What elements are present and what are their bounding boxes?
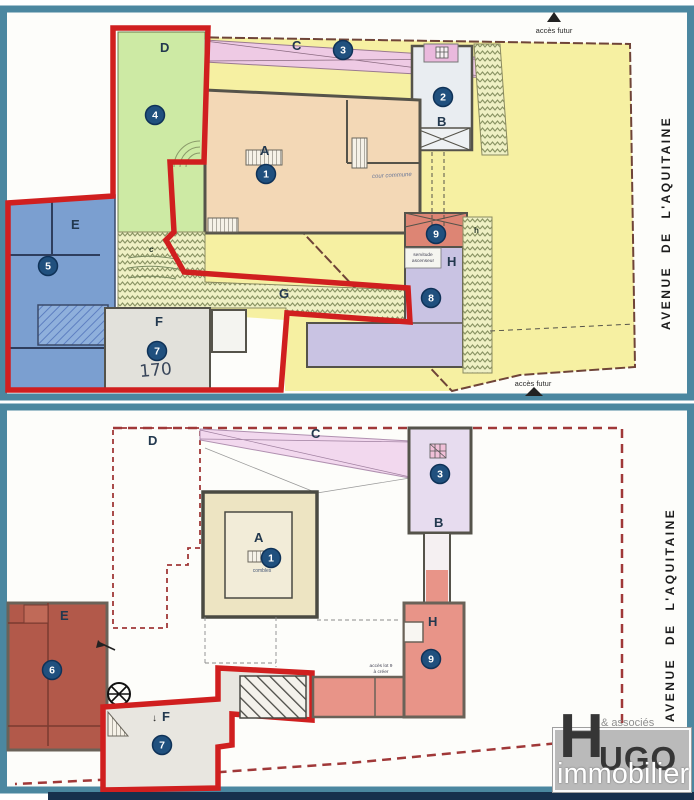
svg-text:4: 4 bbox=[152, 110, 158, 122]
acces-lot9-line2: à créer bbox=[374, 669, 389, 675]
top-letter-a: A bbox=[260, 143, 270, 158]
lot-circle-5: 5 bbox=[39, 257, 58, 276]
top-zone-e-building bbox=[8, 195, 115, 390]
zone-e-servitude-hatch bbox=[38, 305, 108, 345]
top-letter-c: C bbox=[292, 38, 302, 53]
acces-futur-top-label: accès futur bbox=[536, 26, 573, 35]
stairs-icon bbox=[352, 138, 367, 168]
top-plan: D C B A E c G h F H 4 3 2 1 5 9 8 7 cour… bbox=[4, 9, 691, 397]
lot-circle-3: 3 bbox=[431, 465, 450, 484]
bottom-letter-h: H bbox=[428, 614, 437, 629]
lot-circle-2: 2 bbox=[434, 88, 453, 107]
top-letter-g: G bbox=[279, 286, 289, 301]
handwritten-170: 170 bbox=[139, 359, 173, 382]
top-letter-f: F bbox=[155, 314, 163, 329]
servitude-label-line1: servitude bbox=[413, 252, 433, 258]
lot-circle-6: 6 bbox=[43, 661, 62, 680]
svg-text:3: 3 bbox=[340, 45, 346, 57]
lot-circle-1: 1 bbox=[257, 165, 276, 184]
top-f-side-room bbox=[212, 310, 246, 352]
svg-text:9: 9 bbox=[428, 654, 434, 666]
stairs-icon bbox=[208, 218, 238, 232]
bottom-letter-e: E bbox=[60, 608, 69, 623]
lot-circle-4: 4 bbox=[146, 106, 165, 125]
bottom-letter-c: C bbox=[311, 426, 321, 441]
lot-circle-9: 9 bbox=[422, 650, 441, 669]
svg-text:7: 7 bbox=[159, 740, 165, 752]
site-plan-scan: D C B A E c G h F H 4 3 2 1 5 9 8 7 cour… bbox=[0, 0, 694, 800]
svg-text:6: 6 bbox=[49, 665, 55, 677]
zone-e-top-room bbox=[24, 605, 48, 623]
top-letter-h-small: h bbox=[474, 226, 479, 235]
grid-icon bbox=[436, 47, 448, 58]
top-letter-d: D bbox=[160, 40, 169, 55]
bottom-letter-f: F bbox=[162, 709, 170, 724]
lot-circle-7: 7 bbox=[153, 736, 172, 755]
bottom-scan-edge-bar bbox=[48, 792, 694, 800]
lot-circle-7: 7 bbox=[148, 342, 167, 361]
acces-futur-bottom-label: accès futur bbox=[515, 379, 552, 388]
servitude-label-box bbox=[405, 248, 441, 268]
bottom-letter-a: A bbox=[254, 530, 264, 545]
svg-text:7: 7 bbox=[154, 346, 160, 358]
top-letter-h: H bbox=[447, 254, 456, 269]
bottom-letter-b: B bbox=[434, 515, 443, 530]
acces-lot9-line1: accès lot 9 bbox=[370, 663, 393, 669]
top-street-label: AVENUE DE L'AQUITAINE bbox=[659, 116, 673, 330]
grid-icon bbox=[430, 444, 446, 458]
servitude-label-line2: ascenseur bbox=[412, 258, 435, 264]
door-arrow-glyph: ↓ bbox=[152, 713, 157, 724]
svg-text:8: 8 bbox=[428, 293, 434, 305]
lot-circle-3: 3 bbox=[334, 41, 353, 60]
top-letter-e: E bbox=[71, 217, 80, 232]
bottom-h-left-wing bbox=[313, 677, 404, 717]
bottom-b-corridor-salmon bbox=[426, 570, 448, 603]
svg-text:2: 2 bbox=[440, 92, 446, 104]
svg-text:1: 1 bbox=[268, 553, 274, 565]
top-letter-c-small: c bbox=[149, 245, 154, 254]
svg-text:1: 1 bbox=[263, 169, 269, 181]
svg-text:3: 3 bbox=[437, 469, 443, 481]
bottom-street-label: AVENUE DE L'AQUITAINE bbox=[663, 508, 677, 722]
top-zone-d-garden bbox=[118, 32, 205, 232]
top-hatched-strip-h bbox=[463, 217, 492, 373]
hatched-annex bbox=[240, 676, 306, 718]
lot-circle-8: 8 bbox=[422, 289, 441, 308]
bottom-letter-d: D bbox=[148, 433, 157, 448]
hugo-logo: & associés H UGO immobilier bbox=[551, 714, 691, 792]
h-small-room bbox=[404, 622, 423, 642]
svg-text:9: 9 bbox=[433, 229, 439, 241]
lot-circle-1: 1 bbox=[262, 549, 281, 568]
top-letter-b: B bbox=[437, 114, 446, 129]
top-building-a bbox=[205, 90, 420, 233]
logo-immobilier-text: immobilier bbox=[557, 760, 689, 789]
logo-h-letter: H bbox=[559, 710, 604, 763]
combles-label: combles bbox=[253, 568, 272, 574]
lot-circle-9: 9 bbox=[427, 225, 446, 244]
svg-text:5: 5 bbox=[45, 261, 51, 273]
